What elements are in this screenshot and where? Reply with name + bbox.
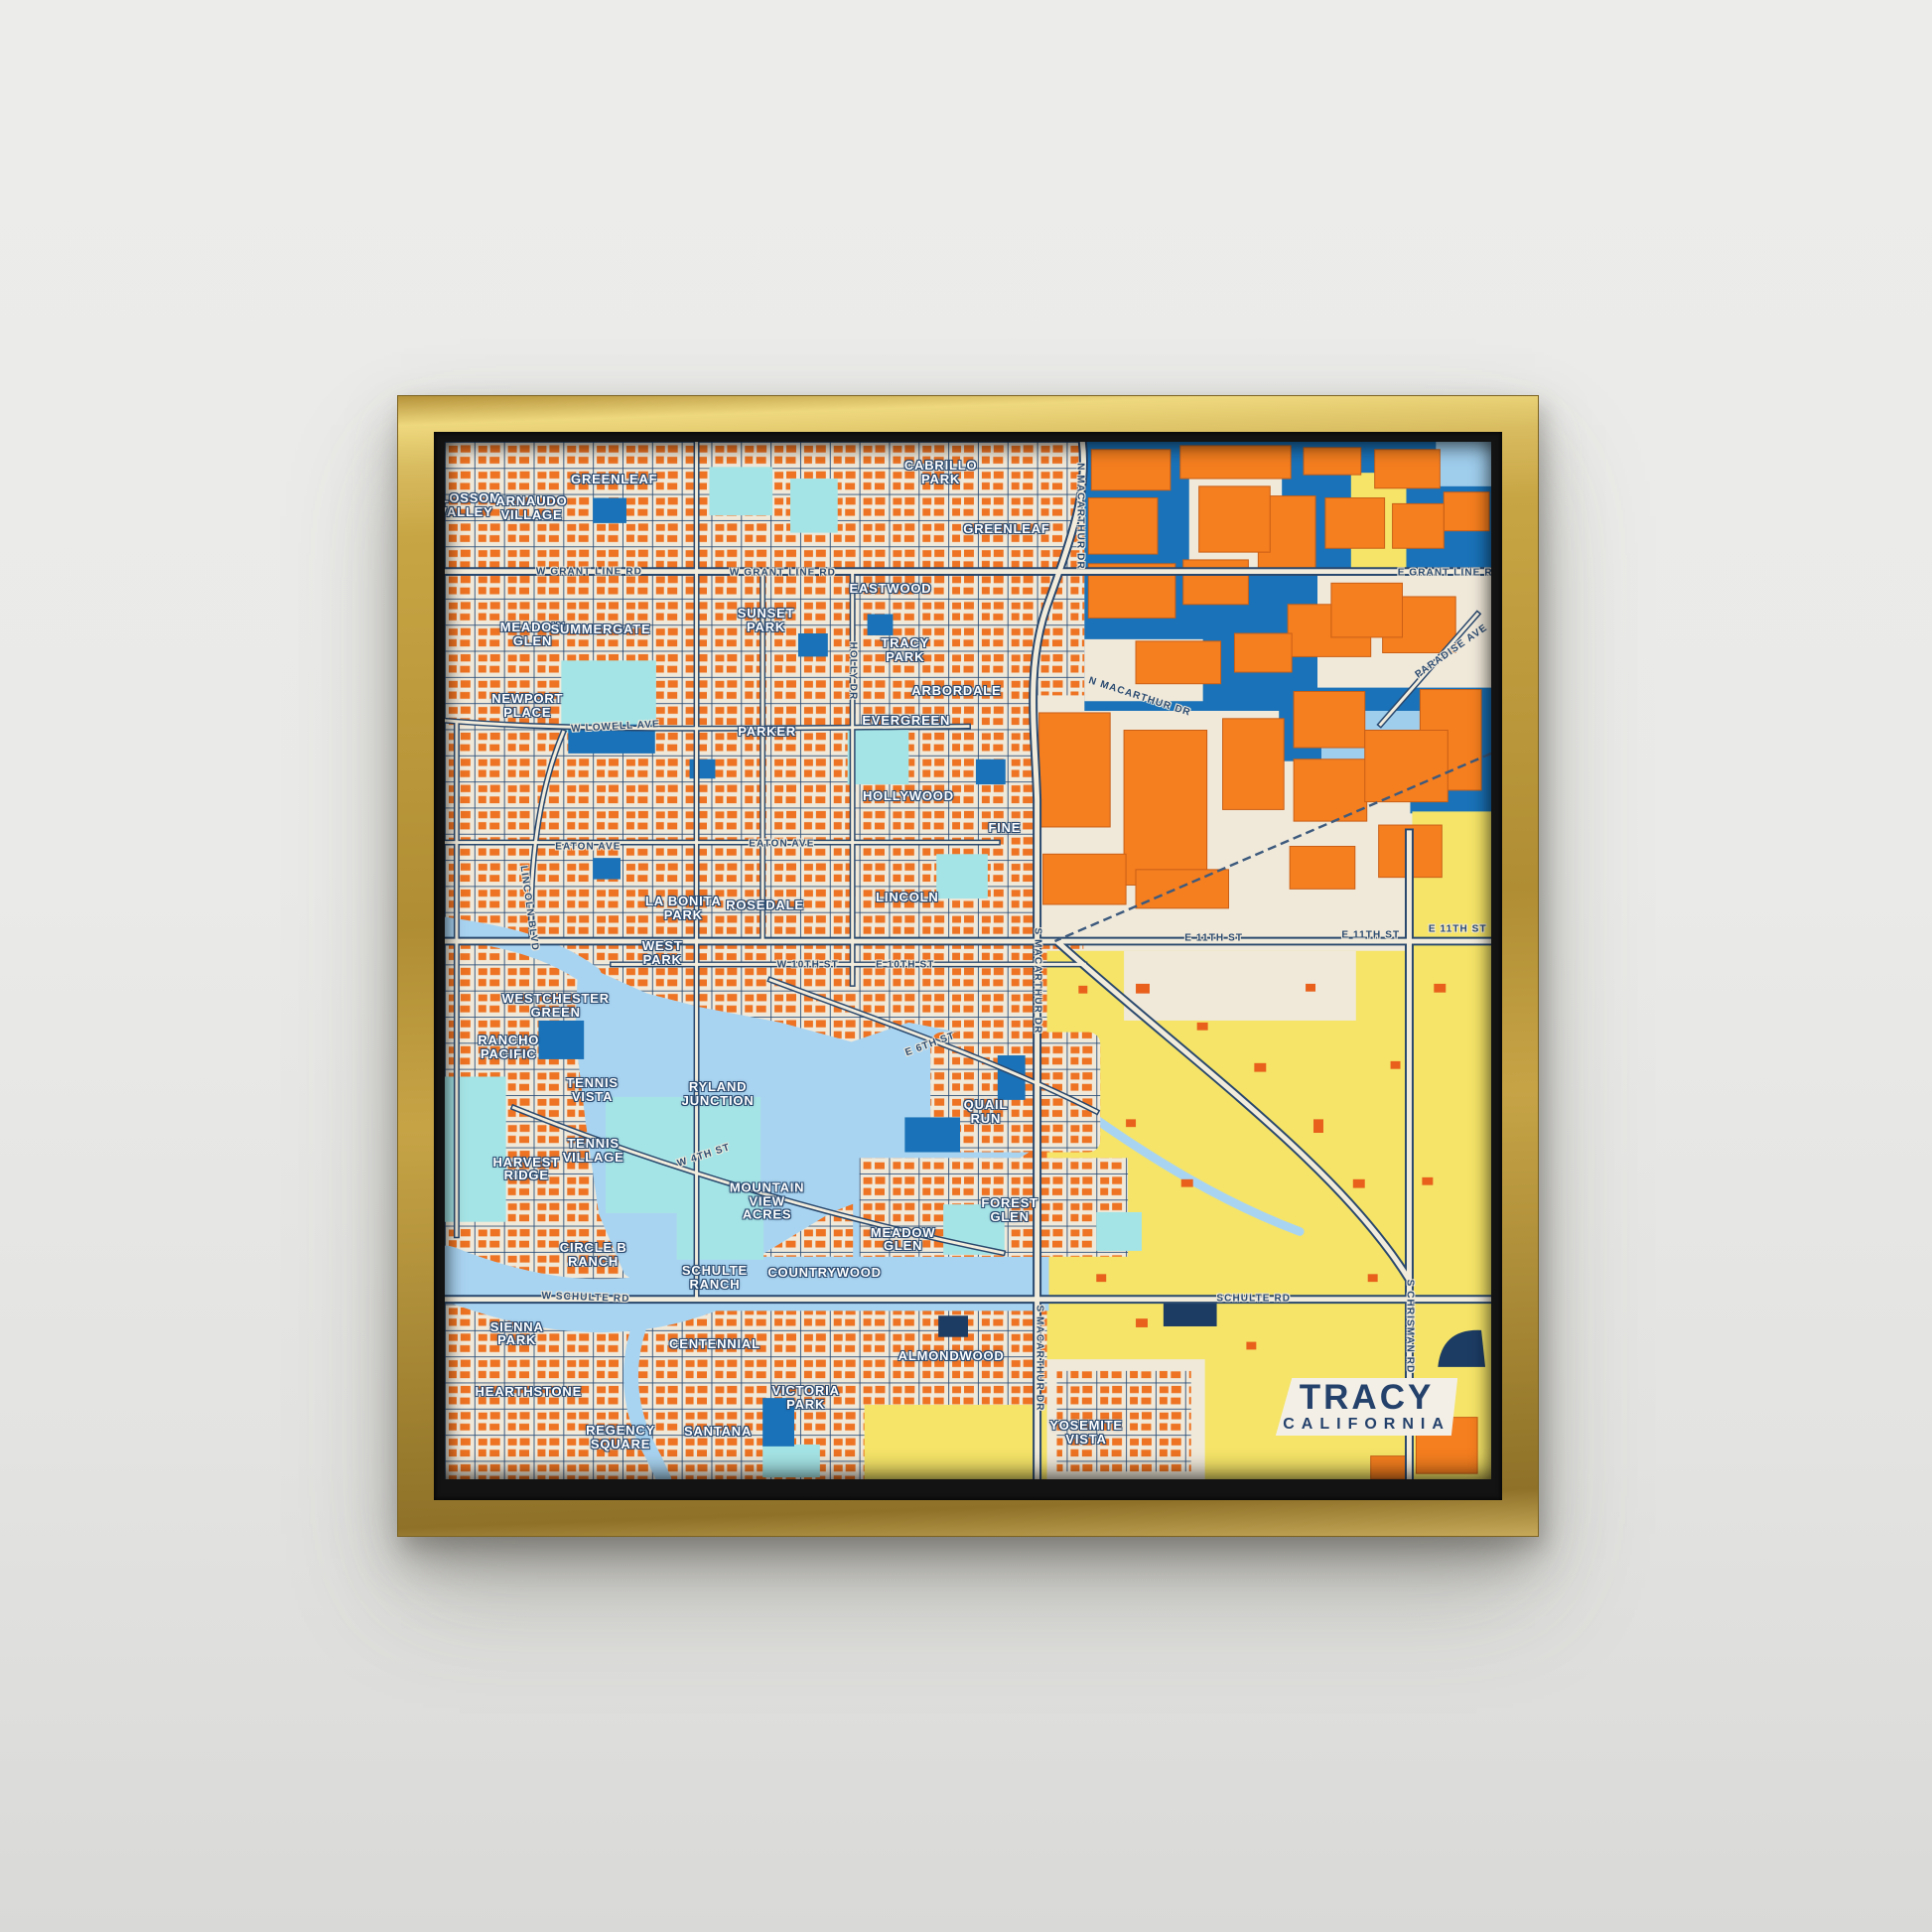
neighborhood-label: MEADOW GLEN bbox=[871, 1226, 935, 1254]
road-label: W GRANT LINE RD bbox=[730, 567, 836, 578]
neighborhood-label: RANCHO PACIFIC bbox=[478, 1035, 539, 1062]
road-label: E 11TH ST bbox=[1341, 930, 1400, 941]
state-name: CALIFORNIA bbox=[1283, 1417, 1450, 1433]
neighborhood-label: SUMMERGATE bbox=[551, 622, 651, 636]
neighborhood-label: REGENCY SQUARE bbox=[586, 1424, 655, 1451]
neighborhood-label: YOSEMITE VISTA bbox=[1049, 1419, 1123, 1447]
road-label: N MACARTHUR DR bbox=[1087, 675, 1192, 719]
neighborhood-label: QUAIL RUN bbox=[964, 1098, 1008, 1126]
road-label: E 10TH ST bbox=[876, 959, 934, 970]
road-label: N MACARTHUR DR bbox=[1074, 463, 1085, 570]
road-label: E GRANT LINE RD bbox=[1398, 567, 1491, 578]
neighborhood-label: WEST PARK bbox=[642, 939, 683, 967]
road-label: EATON AVE bbox=[749, 839, 814, 850]
neighborhood-label: WESTCHESTER GREEN bbox=[501, 993, 609, 1021]
title-card: TRACY CALIFORNIA bbox=[1276, 1378, 1457, 1437]
map-labels-layer: BLOSSOM VALLEYARNAUDO VILLAGEGREENLEAFCA… bbox=[445, 442, 1491, 1479]
road-label: W GRANT LINE RD bbox=[536, 566, 642, 577]
neighborhood-label: CIRCLE B RANCH bbox=[560, 1242, 627, 1270]
neighborhood-label: TENNIS VISTA bbox=[566, 1076, 618, 1104]
neighborhood-label: COUNTRYWOOD bbox=[767, 1266, 881, 1280]
neighborhood-label: ROSEDALE bbox=[726, 898, 804, 912]
neighborhood-label: HARVEST RIDGE bbox=[492, 1156, 559, 1183]
road-label: W 10TH ST bbox=[777, 959, 839, 970]
neighborhood-label: SCHULTE RANCH bbox=[682, 1265, 748, 1293]
neighborhood-label: BLOSSOM VALLEY bbox=[445, 491, 501, 519]
road-label: S CHRISMAN RD bbox=[1404, 1280, 1415, 1374]
road-label: PARADISE AVE bbox=[1413, 622, 1489, 681]
picture-frame: BLOSSOM VALLEYARNAUDO VILLAGEGREENLEAFCA… bbox=[397, 395, 1539, 1537]
neighborhood-label: ARBORDALE bbox=[911, 684, 1001, 698]
road-label: E 11TH ST bbox=[1184, 932, 1243, 943]
road-label: EATON AVE bbox=[555, 841, 621, 852]
neighborhood-label: FOREST GLEN bbox=[981, 1197, 1038, 1225]
neighborhood-label: LINCOLN bbox=[876, 891, 938, 904]
city-name: TRACY bbox=[1300, 1380, 1435, 1415]
neighborhood-label: MOUNTAIN VIEW ACRES bbox=[730, 1180, 804, 1221]
neighborhood-label: VICTORIA PARK bbox=[771, 1385, 839, 1413]
road-label: E 11TH ST bbox=[1429, 924, 1487, 935]
neighborhood-label: SANTANA bbox=[684, 1425, 752, 1439]
neighborhood-label: RYLAND JUNCTION bbox=[682, 1081, 755, 1109]
neighborhood-label: HEARTHSTONE bbox=[476, 1385, 583, 1399]
road-label: S MACARTHUR DR bbox=[1032, 928, 1042, 1035]
neighborhood-label: CABRILLO PARK bbox=[904, 460, 978, 487]
frame-inner-lip: BLOSSOM VALLEYARNAUDO VILLAGEGREENLEAFCA… bbox=[434, 432, 1502, 1500]
road-label: SCHULTE RD bbox=[1216, 1294, 1291, 1305]
road-label: W SCHULTE RD bbox=[542, 1291, 630, 1305]
neighborhood-label: SUNSET PARK bbox=[738, 607, 795, 634]
neighborhood-label: GREENLEAF bbox=[571, 473, 657, 486]
neighborhood-label: LA BONITA PARK bbox=[645, 895, 722, 922]
neighborhood-label: EVERGREEN bbox=[862, 714, 950, 728]
neighborhood-label: ALMONDWOOD bbox=[898, 1349, 1005, 1363]
neighborhood-label: CENTENNIAL bbox=[669, 1337, 760, 1351]
neighborhood-label: ARNAUDO VILLAGE bbox=[495, 494, 567, 522]
neighborhood-label: SIENNA PARK bbox=[490, 1320, 544, 1348]
neighborhood-label: HOLLYWOOD bbox=[863, 789, 954, 803]
road-label: E 6TH ST bbox=[903, 1031, 956, 1058]
road-label: S MACARTHUR DR bbox=[1034, 1305, 1044, 1411]
neighborhood-label: GREENLEAF bbox=[963, 522, 1049, 536]
road-label: W LOWELL AVE bbox=[571, 720, 660, 736]
road-label: LINCOLN BLVD bbox=[518, 865, 541, 952]
road-label: HOLLY DR bbox=[848, 642, 859, 701]
neighborhood-label: EASTWOOD bbox=[850, 582, 932, 596]
road-label: W 4TH ST bbox=[676, 1142, 732, 1170]
neighborhood-label: PARKER bbox=[738, 725, 796, 739]
neighborhood-label: NEWPORT PLACE bbox=[491, 693, 563, 721]
neighborhood-label: FINE bbox=[988, 821, 1021, 835]
neighborhood-label: TENNIS VILLAGE bbox=[563, 1137, 624, 1165]
map-canvas: BLOSSOM VALLEYARNAUDO VILLAGEGREENLEAFCA… bbox=[445, 442, 1491, 1479]
wall-scene: BLOSSOM VALLEYARNAUDO VILLAGEGREENLEAFCA… bbox=[0, 0, 1932, 1932]
neighborhood-label: TRACY PARK bbox=[881, 636, 929, 664]
